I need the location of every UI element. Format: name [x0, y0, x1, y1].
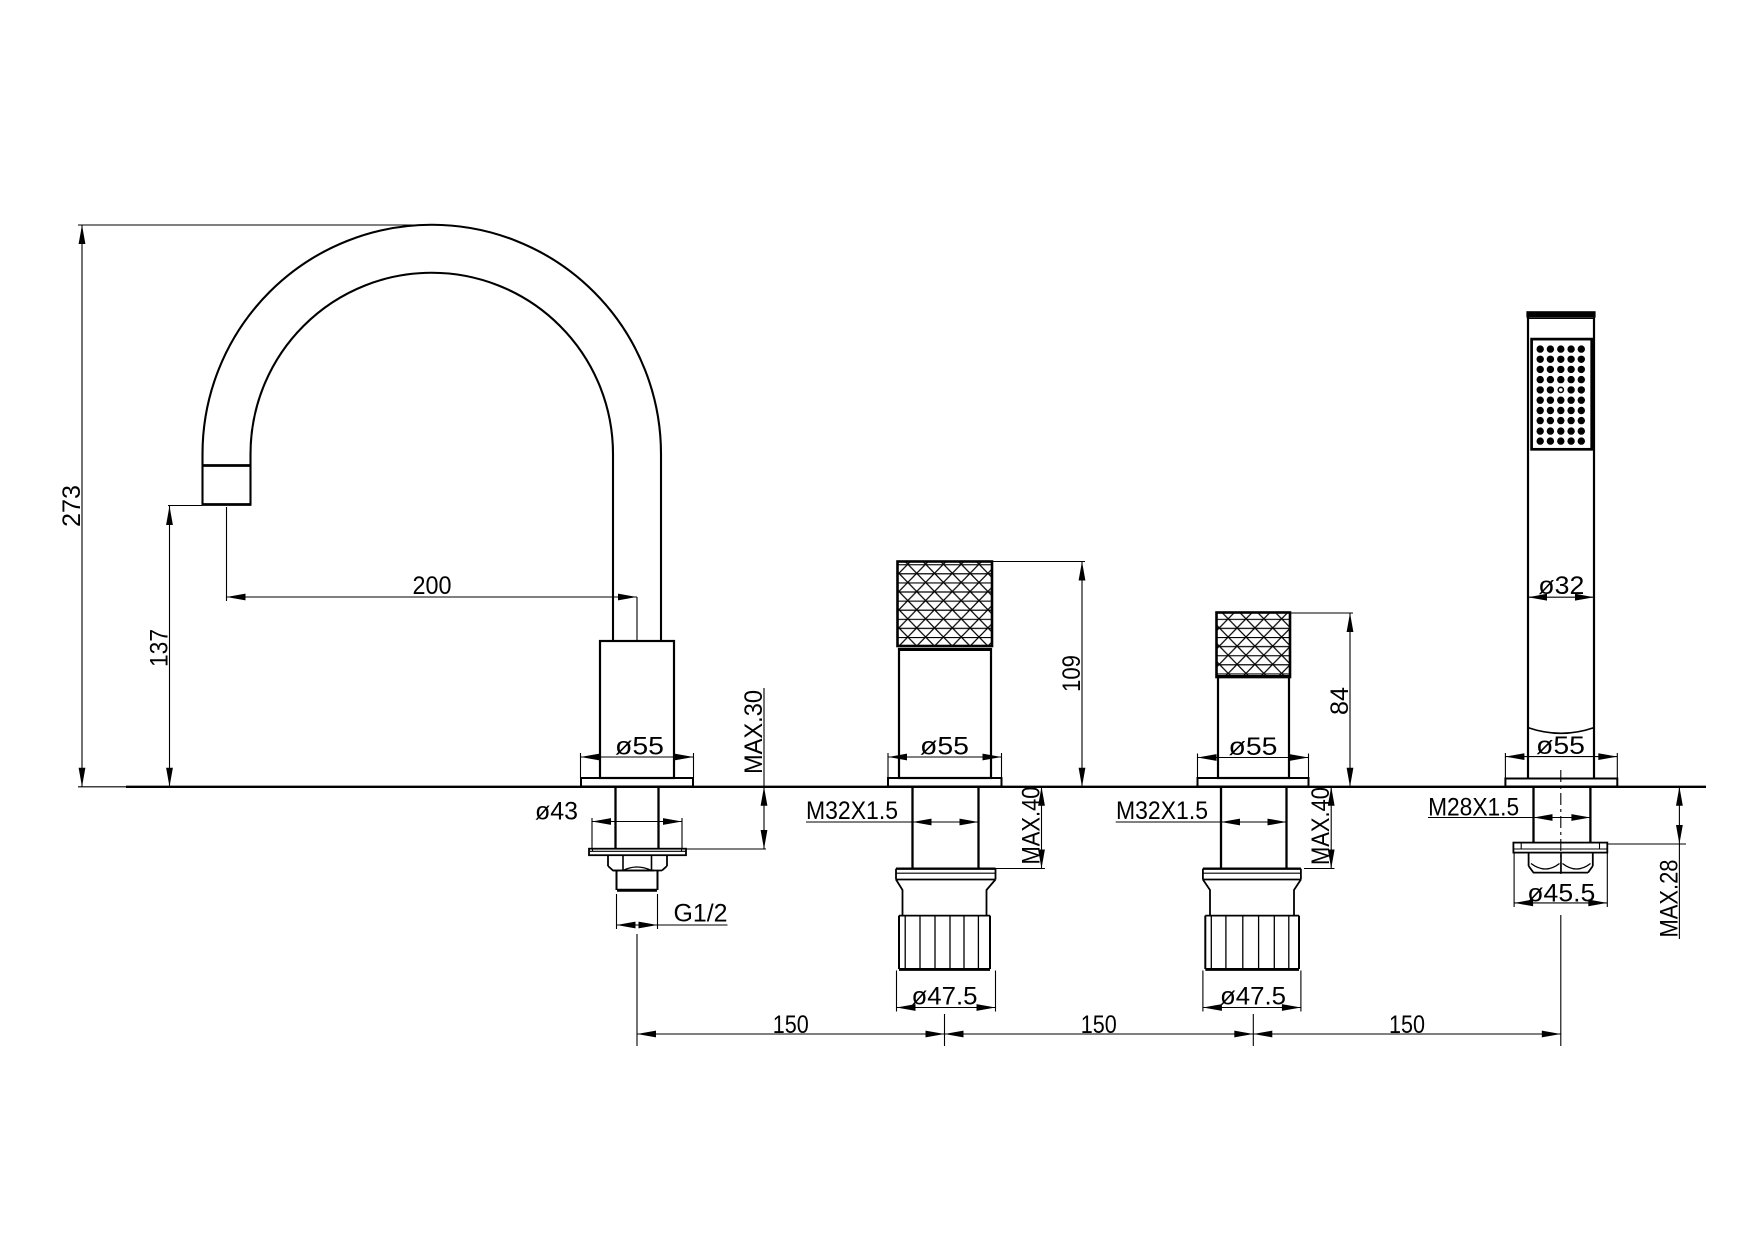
svg-text:M32X1.5: M32X1.5 [1116, 797, 1208, 825]
svg-text:ø43: ø43 [535, 798, 578, 826]
svg-text:M28X1.5: M28X1.5 [1428, 794, 1519, 822]
svg-text:G1/2: G1/2 [674, 900, 728, 928]
svg-text:137: 137 [146, 629, 174, 667]
svg-text:MAX.30: MAX.30 [740, 690, 768, 774]
svg-text:84: 84 [1326, 687, 1354, 715]
svg-text:ø55: ø55 [1229, 733, 1278, 761]
svg-text:ø55: ø55 [920, 733, 969, 761]
svg-text:MAX.40: MAX.40 [1018, 787, 1046, 865]
svg-text:ø45.5: ø45.5 [1527, 880, 1595, 908]
svg-text:150: 150 [1389, 1011, 1425, 1039]
svg-text:109: 109 [1058, 655, 1086, 692]
svg-text:MAX.40: MAX.40 [1307, 787, 1335, 865]
svg-text:150: 150 [773, 1011, 809, 1039]
svg-text:ø55: ø55 [615, 733, 664, 761]
svg-text:200: 200 [413, 572, 452, 600]
svg-text:ø47.5: ø47.5 [912, 983, 978, 1011]
svg-text:ø47.5: ø47.5 [1220, 983, 1286, 1011]
svg-text:273: 273 [58, 485, 86, 527]
svg-text:ø32: ø32 [1538, 572, 1584, 600]
svg-text:ø55: ø55 [1536, 732, 1585, 760]
svg-text:M32X1.5: M32X1.5 [806, 797, 898, 825]
svg-text:MAX.28: MAX.28 [1655, 860, 1683, 938]
svg-text:150: 150 [1081, 1011, 1117, 1039]
